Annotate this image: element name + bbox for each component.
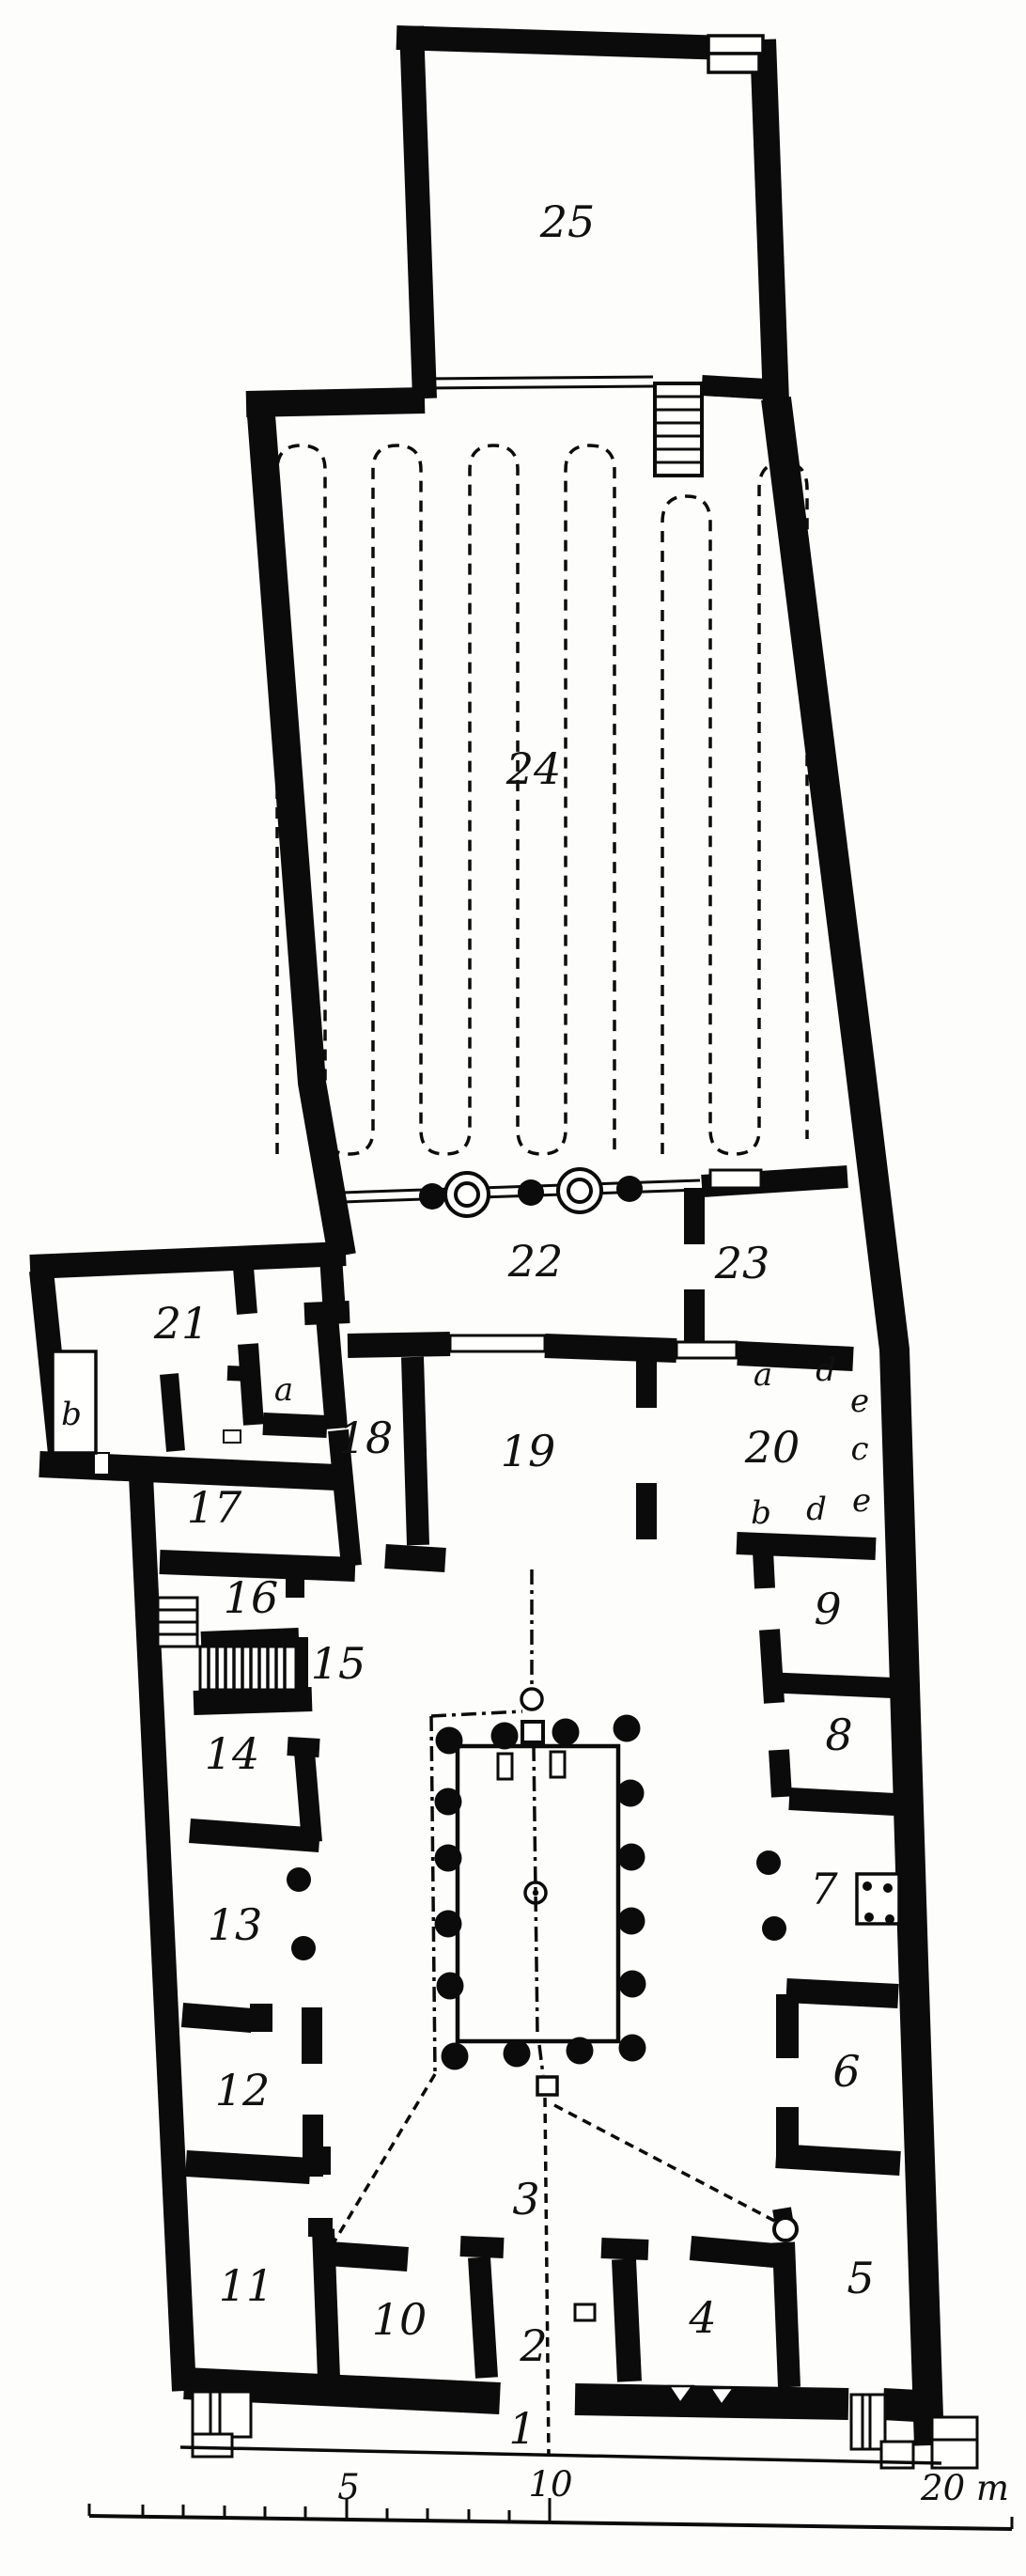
room16-steps <box>158 1598 197 1647</box>
column-base-ring <box>445 1173 489 1216</box>
altar-block <box>575 2304 595 2320</box>
room-label-8: 8 <box>825 1710 852 1760</box>
room-label-19: 19 <box>501 1426 556 1476</box>
staircases <box>158 36 763 1690</box>
column-dot <box>518 1179 544 1206</box>
room-label-22: 22 <box>507 1236 564 1287</box>
letter-a-room20: a <box>754 1356 772 1394</box>
cistern-head <box>537 2077 557 2095</box>
letter-e-room20-upper: e <box>850 1382 869 1420</box>
floor-plan-page: 5 10 20 m 1 2 3 4 5 6 7 8 9 10 11 12 13 … <box>0 0 1026 2576</box>
room-label-2: 2 <box>519 2320 547 2371</box>
room-label-11: 11 <box>219 2260 274 2311</box>
letter-c-room20: c <box>850 1430 868 1468</box>
room-label-5: 5 <box>847 2253 874 2303</box>
letter-b-room20: b <box>751 1494 771 1532</box>
room-label-21: 21 <box>153 1298 210 1349</box>
garden-staircase <box>655 383 702 476</box>
room25-corner-steps <box>708 36 763 72</box>
exedra-columns <box>287 1850 899 1960</box>
table-room7 <box>857 1874 899 1924</box>
outer-walls <box>30 26 929 2445</box>
room-label-25: 25 <box>539 196 596 247</box>
letter-b-closet: b <box>61 1396 82 1433</box>
room-label-15: 15 <box>311 1638 366 1689</box>
staircase-15 <box>200 1647 296 1690</box>
room-label-24: 24 <box>505 743 562 794</box>
scale-label-10: 10 <box>528 2464 572 2505</box>
wellhead-circle <box>521 1689 542 1710</box>
room-label-12: 12 <box>215 2065 271 2115</box>
column-base-circle <box>774 2218 797 2240</box>
letter-d-room20-bottom: d <box>806 1491 827 1528</box>
garden-colonnade <box>342 1169 700 1216</box>
scale-label-20m: 20 m <box>920 2468 1009 2508</box>
room-label-14: 14 <box>205 1728 260 1779</box>
room-label-3: 3 <box>512 2174 539 2225</box>
room-label-7: 7 <box>810 1864 838 1914</box>
room-label-20: 20 <box>744 1422 801 1473</box>
garden-rows <box>277 445 807 1154</box>
peristyle <box>431 1689 797 2240</box>
room-label-16: 16 <box>224 1572 279 1623</box>
facade <box>180 2447 941 2463</box>
room-label-23: 23 <box>714 1238 770 1288</box>
column-base-ring <box>558 1169 601 1212</box>
room-label-17: 17 <box>187 1482 242 1533</box>
scale-label-5: 5 <box>337 2467 360 2507</box>
letter-e-room20-lower: e <box>852 1482 871 1520</box>
room-label-10: 10 <box>372 2294 427 2345</box>
column-dot <box>616 1176 643 1202</box>
column-dot <box>419 1183 445 1210</box>
room-label-6: 6 <box>832 2046 860 2097</box>
room-label-18: 18 <box>338 1413 394 1463</box>
statue-base <box>522 1722 543 1742</box>
room-label-13: 13 <box>208 1899 263 1950</box>
letter-d-room20-top: d <box>816 1351 836 1389</box>
letter-a-annex: a <box>274 1371 293 1409</box>
floor-plan: 5 10 20 m 1 2 3 4 5 6 7 8 9 10 11 12 13 … <box>0 0 1026 2576</box>
scale-bar: 5 10 20 m <box>89 2464 1012 2529</box>
room-label-4: 4 <box>688 2292 716 2343</box>
room-label-9: 9 <box>814 1584 841 1634</box>
room-label-1: 1 <box>508 2403 536 2454</box>
